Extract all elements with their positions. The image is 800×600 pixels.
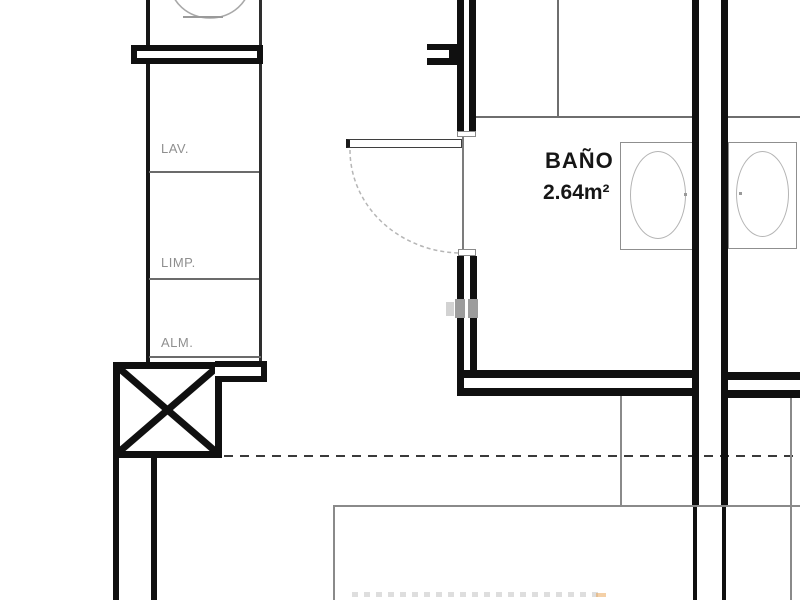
shaft-cross-icon <box>120 369 215 451</box>
party-wall-left-lower <box>693 507 697 600</box>
wall-joint-marker <box>468 299 478 318</box>
toilet-bowl-arc-icon <box>150 0 270 40</box>
door-jamb-bottom <box>458 249 476 256</box>
party-wall-right-upper <box>721 0 728 507</box>
faint-cutoff-content <box>352 592 604 597</box>
wall-left-lower-b <box>151 458 157 600</box>
faucet-dot-icon <box>684 193 687 196</box>
wall-top-strip-left <box>457 0 464 132</box>
beam-line-horizontal <box>728 116 800 118</box>
beam-line-horizontal <box>476 116 692 118</box>
wall-joint-marker <box>455 299 465 318</box>
corridor-north-wall-right <box>728 390 800 398</box>
party-wall-right-lower <box>722 507 726 600</box>
dashed-reference-line <box>224 455 800 457</box>
room-label-lav: LAV. <box>161 142 189 156</box>
party-wall-left-upper <box>692 0 699 507</box>
washbasin-right <box>736 151 789 237</box>
faint-cutoff-content <box>596 593 606 597</box>
door-jamb-top <box>457 131 476 137</box>
guide-line-vertical <box>790 398 792 600</box>
wall-stub <box>215 361 267 382</box>
door-swing-arc <box>335 140 475 265</box>
room-label-alm: ALM. <box>161 336 193 350</box>
bathroom-name-label: BAÑO <box>545 148 614 174</box>
cell-divider <box>149 171 259 173</box>
cell-divider <box>149 278 259 280</box>
room-label-limp: LIMP. <box>161 256 196 270</box>
floor-plan: LAV. LIMP. ALM. BAÑO 2.64m² <box>0 0 800 600</box>
cell-divider <box>149 356 261 358</box>
wall-left-lower-a <box>113 458 119 600</box>
counter-bar <box>131 45 263 64</box>
bottom-room-outline <box>333 505 622 600</box>
beam-line-vertical <box>557 0 559 117</box>
bathroom-south-wall-right <box>728 372 800 380</box>
wall-joint-marker <box>446 302 454 316</box>
bathroom-south-wall <box>464 370 693 378</box>
wall-top-strip-right <box>469 0 476 132</box>
corridor-north-wall <box>457 388 693 396</box>
shaft-box <box>113 362 222 458</box>
washbasin-left <box>630 151 686 239</box>
bathroom-area-label: 2.64m² <box>543 181 610 205</box>
faucet-dot-icon <box>739 192 742 195</box>
wall-jog-notch <box>427 50 449 58</box>
wall-mid-strip-left <box>457 256 464 396</box>
